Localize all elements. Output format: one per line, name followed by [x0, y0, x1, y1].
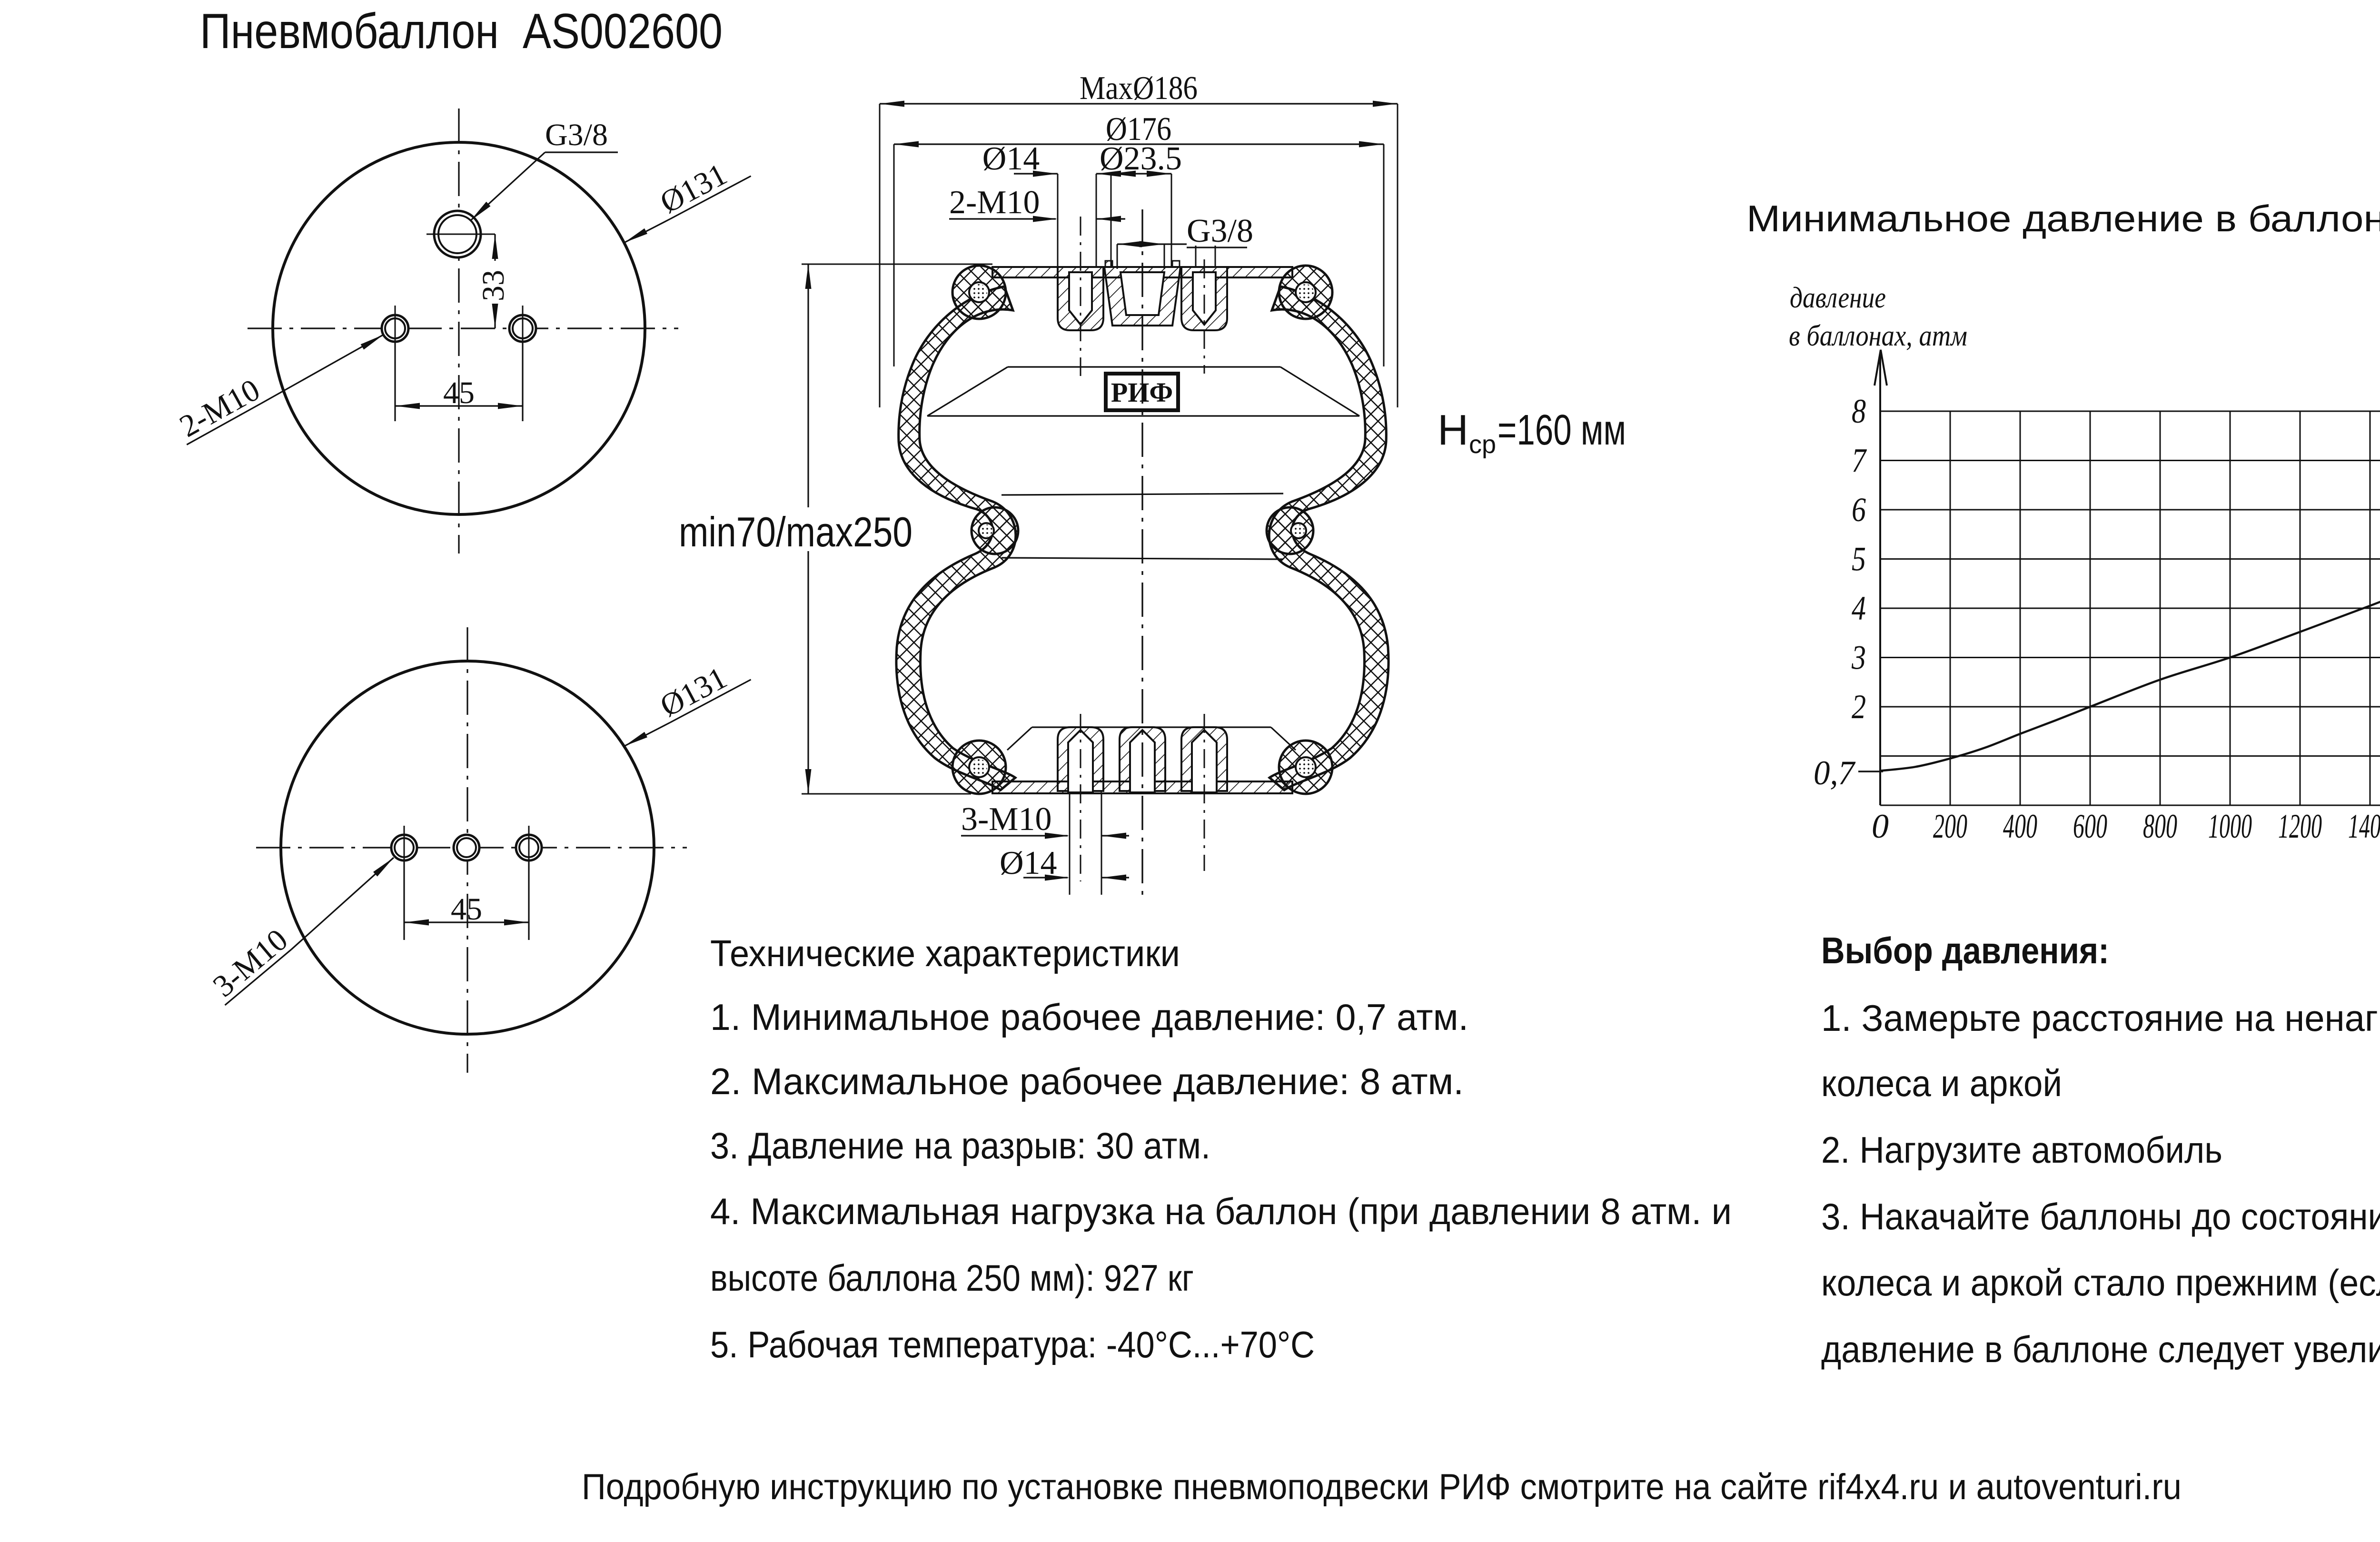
svg-text:2. Нагрузите автомобиль: 2. Нагрузите автомобиль: [1821, 1129, 2222, 1171]
svg-text:min70/max250: min70/max250: [679, 508, 912, 555]
svg-text:колеса и аркой стало прежним (: колеса и аркой стало прежним (если Вы хо…: [1821, 1262, 2380, 1304]
svg-text:0: 0: [1872, 807, 1889, 845]
svg-text:600: 600: [2073, 807, 2107, 845]
svg-text:45: 45: [443, 376, 475, 410]
svg-text:1. Замерьте расстояние на нена: 1. Замерьте расстояние на ненагруженном …: [1821, 997, 2380, 1039]
svg-text:H: H: [1438, 406, 1468, 454]
svg-text:1200: 1200: [2278, 807, 2322, 845]
svg-text:200: 200: [1933, 807, 1967, 845]
svg-text:2. Максимальное рабочее давлен: 2. Максимальное рабочее давление: 8 атм.: [710, 1060, 1464, 1102]
svg-text:MaxØ186: MaxØ186: [1080, 70, 1198, 107]
svg-text:=160 мм: =160 мм: [1497, 406, 1626, 454]
svg-text:3. Давление на разрыв: 30 атм.: 3. Давление на разрыв: 30 атм.: [710, 1125, 1210, 1166]
svg-text:2: 2: [1852, 688, 1866, 726]
svg-text:3: 3: [1851, 639, 1866, 677]
svg-text:Ø14: Ø14: [982, 140, 1040, 177]
svg-text:в баллонах, атм: в баллонах, атм: [1789, 320, 1967, 352]
svg-text:45: 45: [451, 892, 482, 927]
svg-text:1400: 1400: [2348, 807, 2380, 845]
svg-text:4. Максимальная нагрузка на ба: 4. Максимальная нагрузка на баллон (при …: [710, 1190, 1732, 1232]
svg-text:8: 8: [1852, 392, 1866, 430]
svg-text:колеса и аркой: колеса и аркой: [1821, 1062, 2062, 1104]
svg-text:Пневмобаллон AS002600: Пневмобаллон AS002600: [200, 4, 723, 59]
svg-text:давление в баллоне следует уве: давление в баллоне следует увеличить): [1821, 1328, 2380, 1370]
svg-text:G3/8: G3/8: [1187, 213, 1253, 249]
svg-text:3. Накачайте баллоны до состоя: 3. Накачайте баллоны до состояния, чтобы…: [1821, 1196, 2380, 1237]
svg-text:1. Минимальное рабочее давлени: 1. Минимальное рабочее давление: 0,7 атм…: [710, 996, 1468, 1038]
svg-text:высоте баллона 250 мм): 927 кг: высоте баллона 250 мм): 927 кг: [710, 1257, 1194, 1299]
svg-text:давление: давление: [1790, 282, 1886, 314]
svg-text:1000: 1000: [2208, 807, 2252, 845]
svg-text:800: 800: [2143, 807, 2177, 845]
svg-text:G3/8: G3/8: [545, 118, 608, 152]
svg-text:Минимальное давление в баллоне: Минимальное давление в баллоне при нагру…: [1746, 198, 2380, 239]
svg-text:400: 400: [2003, 807, 2037, 845]
svg-text:5. Рабочая температура: -40°C.: 5. Рабочая температура: -40°C...+70°C: [710, 1324, 1315, 1365]
svg-text:ср: ср: [1469, 430, 1496, 459]
svg-text:4: 4: [1852, 589, 1866, 627]
svg-text:Подробную инструкцию по устано: Подробную инструкцию по установке пневмо…: [582, 1467, 2182, 1507]
svg-text:Ø23.5: Ø23.5: [1100, 140, 1182, 177]
svg-text:7: 7: [1852, 442, 1867, 480]
svg-text:2-M10: 2-M10: [949, 184, 1040, 221]
svg-text:0,7: 0,7: [1814, 754, 1856, 792]
svg-text:33: 33: [476, 270, 511, 301]
svg-text:Выбор давления:: Выбор давления:: [1821, 929, 2109, 971]
svg-text:Технические характеристики: Технические характеристики: [710, 932, 1180, 974]
svg-text:5: 5: [1852, 540, 1866, 578]
svg-text:3-M10: 3-M10: [961, 801, 1052, 838]
svg-text:6: 6: [1852, 491, 1866, 529]
